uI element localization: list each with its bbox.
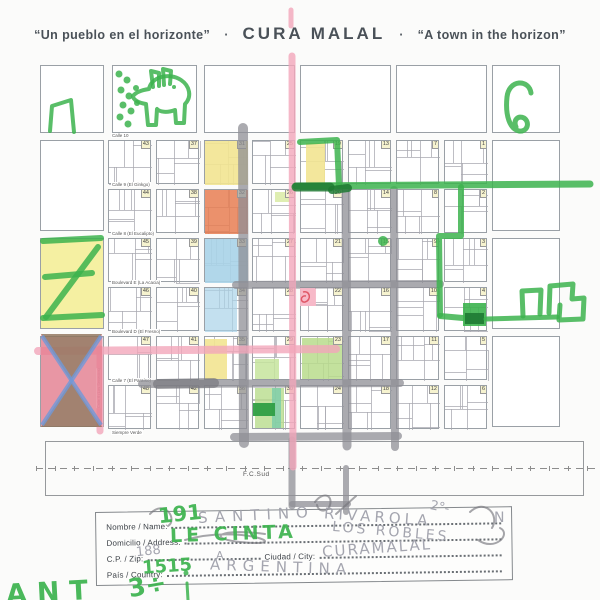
edge-block: [492, 140, 560, 231]
parcel-line: [290, 357, 291, 381]
parcel-line: [349, 412, 392, 413]
parcel-line: [176, 239, 177, 283]
parcel-line: [157, 302, 200, 303]
parcel-line: [341, 161, 342, 185]
parcel-line: [119, 190, 120, 210]
parcel-line: [436, 301, 437, 332]
parcel-line: [273, 318, 296, 319]
parcel-line: [233, 337, 234, 381]
parcel-line: [374, 141, 375, 167]
parcel-line: [365, 239, 366, 253]
parcel-line: [343, 239, 344, 262]
parcel-line: [268, 190, 269, 213]
parcel-line: [488, 350, 489, 381]
parcel-line: [445, 406, 467, 407]
parcel-line: [365, 141, 366, 185]
parcel-line: [445, 372, 466, 373]
block-number: 8: [432, 190, 438, 198]
parcel-line: [356, 386, 357, 412]
parcel-line: [349, 311, 392, 312]
street-label: Calle 7 (El Paraíso): [111, 378, 152, 383]
handwriting-address-green: LE CINTA: [170, 521, 298, 547]
crayon-fill: [306, 143, 325, 183]
block-number: 46: [141, 288, 150, 296]
city-block-47: 47: [108, 336, 151, 380]
parcel-line: [316, 239, 317, 262]
parcel-line: [327, 141, 328, 161]
parcel-line: [181, 337, 182, 360]
edge-block: [40, 140, 104, 231]
parcel-line: [157, 403, 200, 404]
city-block-1: 1: [444, 140, 487, 184]
parcel-line: [369, 288, 370, 332]
parcel-line: [285, 256, 286, 283]
parcel-line: [325, 190, 326, 234]
city-block-4: 4: [444, 287, 487, 331]
parcel-line: [124, 141, 125, 167]
city-block-45: 45: [108, 238, 151, 282]
city-block-16: 16: [348, 287, 391, 331]
parcel-line: [409, 403, 410, 430]
city-block-9: 9: [396, 238, 439, 282]
parcel-line: [114, 386, 115, 413]
block-number: 38: [189, 190, 198, 198]
block-number: 23: [333, 337, 342, 345]
city-block-6: 6: [444, 385, 487, 429]
parcel-line: [179, 410, 200, 411]
parcel-line: [221, 420, 248, 421]
block-number: 22: [333, 288, 342, 296]
parcel-line: [209, 386, 210, 409]
parcel-line: [453, 239, 454, 265]
block-number: 11: [429, 337, 438, 345]
city-block-46: 46: [108, 287, 151, 331]
scribble-fragment-left: ANT: [5, 575, 98, 600]
edge-block: [40, 65, 104, 133]
parcel-line: [474, 239, 475, 265]
parcel-line: [176, 386, 177, 403]
parcel-line: [148, 354, 149, 381]
parcel-line: [175, 201, 200, 202]
street-label: Boulevard E (La Acacia): [111, 280, 161, 285]
parcel-line: [134, 190, 135, 234]
parcel-line: [110, 288, 111, 311]
parcel-line: [157, 380, 178, 381]
parcel-line: [356, 167, 357, 185]
parcel-line: [445, 163, 488, 164]
city-block-21: 21: [300, 238, 343, 282]
parcel-line: [270, 167, 296, 168]
parcel-line: [382, 354, 383, 381]
parcel-line: [253, 213, 296, 214]
parcel-line: [232, 351, 233, 381]
city-block-10: 10: [396, 287, 439, 331]
parcel-line: [109, 354, 152, 355]
parcel-line: [162, 190, 163, 216]
parcel-line: [463, 249, 488, 250]
parcel-line: [318, 406, 319, 430]
crayon-fill: [205, 339, 227, 379]
parcel-line: [171, 337, 172, 360]
city-block-12: 12: [396, 385, 439, 429]
city-block-29: 29: [252, 336, 295, 380]
parcel-line: [326, 273, 344, 274]
city-block-7: 7: [396, 140, 439, 184]
edge-block: [492, 238, 560, 329]
parcel-line: [133, 141, 134, 185]
parcel-line: [469, 288, 470, 307]
block-number: 13: [381, 141, 390, 149]
block-number: 21: [333, 239, 342, 247]
parcel-line: [135, 249, 152, 250]
parcel-line: [401, 337, 402, 360]
parcel-line: [177, 306, 200, 307]
parcel-line: [445, 206, 488, 207]
block-number: 7: [432, 141, 438, 149]
parcel-line: [125, 416, 152, 417]
parcel-line: [369, 141, 370, 167]
block-number: 4: [480, 288, 486, 296]
parcel-line: [139, 354, 140, 381]
city-block-33: 33: [204, 238, 247, 282]
block-number: 9: [432, 239, 438, 247]
parcel-line: [109, 253, 152, 254]
city-block-14: 14: [348, 189, 391, 233]
parcel-line: [427, 239, 428, 259]
parcel-line: [113, 386, 114, 413]
parcel-line: [349, 403, 371, 404]
city-block-25: 25: [252, 140, 295, 184]
parcel-line: [324, 169, 344, 170]
parcel-line: [349, 210, 392, 211]
block-number: 33: [237, 239, 246, 247]
block-number: 48: [141, 386, 150, 394]
block-number: 47: [141, 337, 150, 345]
block-number: 37: [189, 141, 198, 149]
parcel-line: [439, 288, 440, 301]
city-block-32: 32: [204, 189, 247, 233]
parcel-line: [451, 409, 452, 430]
block-number: 34: [237, 288, 246, 296]
parcel-line: [245, 351, 246, 381]
city-block-36: 36: [204, 385, 247, 429]
scanned-worksheet: “Un pueblo en el horizonte” · CURA MALAL…: [0, 0, 600, 600]
parcel-line: [469, 239, 470, 265]
parcel-line: [131, 190, 132, 210]
block-number: 45: [141, 239, 150, 247]
parcel-line: [360, 311, 361, 332]
parcel-line: [335, 204, 336, 234]
city-block-26: 26: [252, 189, 295, 233]
parcel-line: [365, 170, 392, 171]
parcel-line: [349, 360, 370, 361]
block-number: 28: [285, 288, 294, 296]
city-block-15: 15: [348, 238, 391, 282]
parcel-line: [157, 396, 179, 397]
parcel-line: [261, 213, 262, 234]
street-label: Siempre Verde: [111, 430, 143, 435]
parcel-line: [463, 239, 464, 283]
parcel-line: [337, 204, 338, 234]
parcel-line: [200, 141, 201, 158]
parcel-line: [467, 402, 488, 403]
city-block-8: 8: [396, 189, 439, 233]
parcel-line: [157, 277, 176, 278]
parcel-line: [301, 262, 344, 263]
parcel-line: [374, 190, 375, 210]
block-number: 30: [285, 386, 294, 394]
parcel-line: [325, 141, 326, 161]
parcel-line: [466, 337, 467, 381]
block-number: 19: [333, 141, 342, 149]
parcel-line: [301, 199, 325, 200]
parcel-line: [445, 265, 488, 266]
parcel-line: [465, 337, 466, 350]
city-block-38: 38: [156, 189, 199, 233]
parcel-line: [114, 239, 115, 253]
parcel-line: [466, 369, 488, 370]
city-block-22: 22: [300, 287, 343, 331]
parcel-line: [276, 337, 277, 357]
parcel-line: [430, 403, 431, 430]
city-block-28: 28: [252, 287, 295, 331]
parcel-line: [124, 190, 125, 210]
parcel-line: [370, 190, 371, 210]
parcel-line: [412, 427, 440, 428]
parcel-line: [397, 259, 440, 260]
crayon-fill: [205, 288, 237, 332]
parcel-line: [464, 331, 488, 332]
railway-track-line: [36, 466, 596, 471]
parcel-line: [371, 386, 372, 430]
parcel-line: [453, 141, 454, 163]
parcel-line: [157, 216, 200, 217]
block-number: 12: [429, 386, 438, 394]
parcel-line: [301, 406, 317, 407]
parcel-line: [109, 210, 152, 211]
block-number: 15: [381, 239, 390, 247]
parcel-line: [294, 141, 295, 155]
parcel-line: [132, 253, 133, 283]
parcel-line: [356, 354, 357, 381]
edge-block: [396, 65, 487, 133]
parcel-line: [266, 314, 267, 332]
block-number: 26: [285, 190, 294, 198]
parcel-line: [271, 190, 272, 234]
parcel-line: [427, 386, 428, 403]
parcel-line: [397, 345, 424, 346]
parcel-line: [377, 210, 378, 234]
block-number: 20: [333, 190, 342, 198]
block-number: 24: [333, 386, 342, 394]
parcel-line: [109, 219, 134, 220]
parcel-line: [135, 239, 136, 283]
parcel-line: [369, 327, 392, 328]
block-number: 42: [189, 386, 198, 394]
street-label: Calle 8 (El Eucalipto): [111, 231, 155, 236]
parcel-line: [359, 337, 360, 354]
parcel-line: [478, 307, 479, 332]
edge-block: [112, 65, 197, 133]
block-number: 40: [189, 288, 198, 296]
parcel-line: [462, 211, 488, 212]
parcel-line: [188, 403, 189, 430]
parcel-line: [308, 305, 309, 332]
parcel-line: [271, 215, 296, 216]
parcel-line: [174, 259, 175, 283]
parcel-line: [327, 305, 328, 332]
parcel-line: [175, 203, 200, 204]
parcel-line: [351, 412, 352, 430]
city-block-48: 48: [108, 385, 151, 429]
city-block-43: 43: [108, 140, 151, 184]
parcel-line: [270, 141, 271, 185]
block-number: 44: [141, 190, 150, 198]
parcel-line: [464, 288, 465, 332]
city-block-39: 39: [156, 238, 199, 282]
parcel-line: [301, 228, 325, 229]
city-block-18: 18: [348, 385, 391, 429]
parcel-line: [137, 337, 138, 381]
parcel-line: [486, 337, 487, 350]
parcel-line: [157, 321, 177, 322]
block-number: 36: [237, 386, 246, 394]
city-block-35: 35: [204, 336, 247, 380]
parcel-line: [403, 190, 404, 216]
edge-block: [300, 65, 391, 133]
parcel-line: [365, 311, 366, 332]
city-block-42: 42: [156, 385, 199, 429]
city-block-17: 17: [348, 336, 391, 380]
parcel-line: [253, 245, 272, 246]
parcel-line: [301, 266, 326, 267]
edge-block: [492, 336, 560, 427]
city-block-37: 37: [156, 140, 199, 184]
parcel-line: [445, 166, 461, 167]
parcel-line: [349, 257, 368, 258]
parcel-line: [445, 350, 488, 351]
parcel-line: [349, 154, 365, 155]
parcel-line: [397, 307, 423, 308]
block-number: 41: [189, 337, 198, 345]
city-block-31: 31: [204, 140, 247, 184]
parcel-line: [326, 239, 327, 283]
parcel-line: [421, 190, 422, 234]
edge-block: [40, 336, 104, 427]
city-block-3: 3: [444, 238, 487, 282]
parcel-line: [462, 190, 463, 234]
parcel-line: [253, 141, 270, 142]
block-number: 1: [480, 141, 486, 149]
parcel-line: [109, 311, 152, 312]
scribble-fragment-right: 3÷: [126, 568, 169, 600]
railway-label: F.C.Sud: [243, 471, 270, 478]
parcel-line: [205, 394, 221, 395]
parcel-line: [259, 314, 260, 332]
parcel-line: [135, 259, 152, 260]
parcel-line: [179, 259, 180, 283]
block-number: 2: [480, 190, 486, 198]
parcel-line: [397, 269, 422, 270]
parcel-line: [293, 213, 294, 234]
parcel-line: [176, 283, 200, 284]
parcel-line: [367, 208, 392, 209]
parcel-line: [398, 239, 399, 259]
edge-block: [492, 65, 560, 133]
parcel-line: [179, 386, 180, 430]
city-block-24: 24: [300, 385, 343, 429]
parcel-line: [397, 211, 421, 212]
parcel-line: [317, 423, 344, 424]
block-number: 16: [381, 288, 390, 296]
street-label-vertical: Calle 6 (Los Senecios): [96, 368, 101, 408]
parcel-line: [158, 158, 159, 185]
parcel-line: [461, 174, 488, 175]
parcel-line: [325, 406, 326, 430]
parcel-line: [420, 182, 440, 183]
parcel-line: [109, 221, 134, 222]
parcel-line: [351, 311, 352, 332]
parcel-line: [136, 288, 137, 332]
parcel-line: [367, 227, 392, 228]
parcel-line: [397, 150, 420, 151]
parcel-line: [137, 352, 152, 353]
parcel-line: [177, 288, 178, 332]
parcel-line: [370, 337, 371, 381]
parcel-line: [205, 409, 248, 410]
parcel-line: [420, 141, 421, 185]
parcel-line: [397, 360, 440, 361]
city-block-2: 2: [444, 189, 487, 233]
parcel-line: [253, 256, 296, 257]
parcel-line: [349, 253, 392, 254]
city-block-11: 11: [396, 336, 439, 380]
parcel-line: [219, 409, 220, 430]
parcel-line: [423, 288, 424, 332]
block-number: 32: [237, 190, 246, 198]
parcel-line: [397, 157, 440, 158]
parcel-line: [157, 360, 200, 361]
parcel-line: [407, 141, 408, 157]
parcel-line: [265, 155, 266, 185]
parcel-line: [221, 386, 222, 430]
parcel-line: [349, 365, 370, 366]
parcel-line: [233, 364, 248, 365]
parcel-line: [136, 297, 152, 298]
parcel-line: [186, 288, 187, 302]
block-number: 5: [480, 337, 486, 345]
parcel-line: [109, 322, 136, 323]
city-block-20: 20: [300, 189, 343, 233]
block-number: 29: [285, 337, 294, 345]
street-label: Calle 9 (El Ginkgo): [111, 182, 151, 187]
parcel-line: [397, 301, 440, 302]
block-number: 3: [480, 239, 486, 247]
parcel-line: [253, 155, 296, 156]
parcel-line: [178, 337, 179, 381]
block-number: 17: [381, 337, 390, 345]
city-block-13: 13: [348, 140, 391, 184]
parcel-line: [397, 315, 423, 316]
block-number: 14: [381, 190, 390, 198]
parcel-line: [467, 386, 468, 430]
parcel-line: [411, 141, 412, 157]
parcel-line: [253, 324, 273, 325]
parcel-line: [445, 269, 463, 270]
parcel-line: [253, 348, 274, 349]
parcel-line: [258, 239, 259, 256]
handwriting-letter-n: N: [494, 510, 504, 526]
